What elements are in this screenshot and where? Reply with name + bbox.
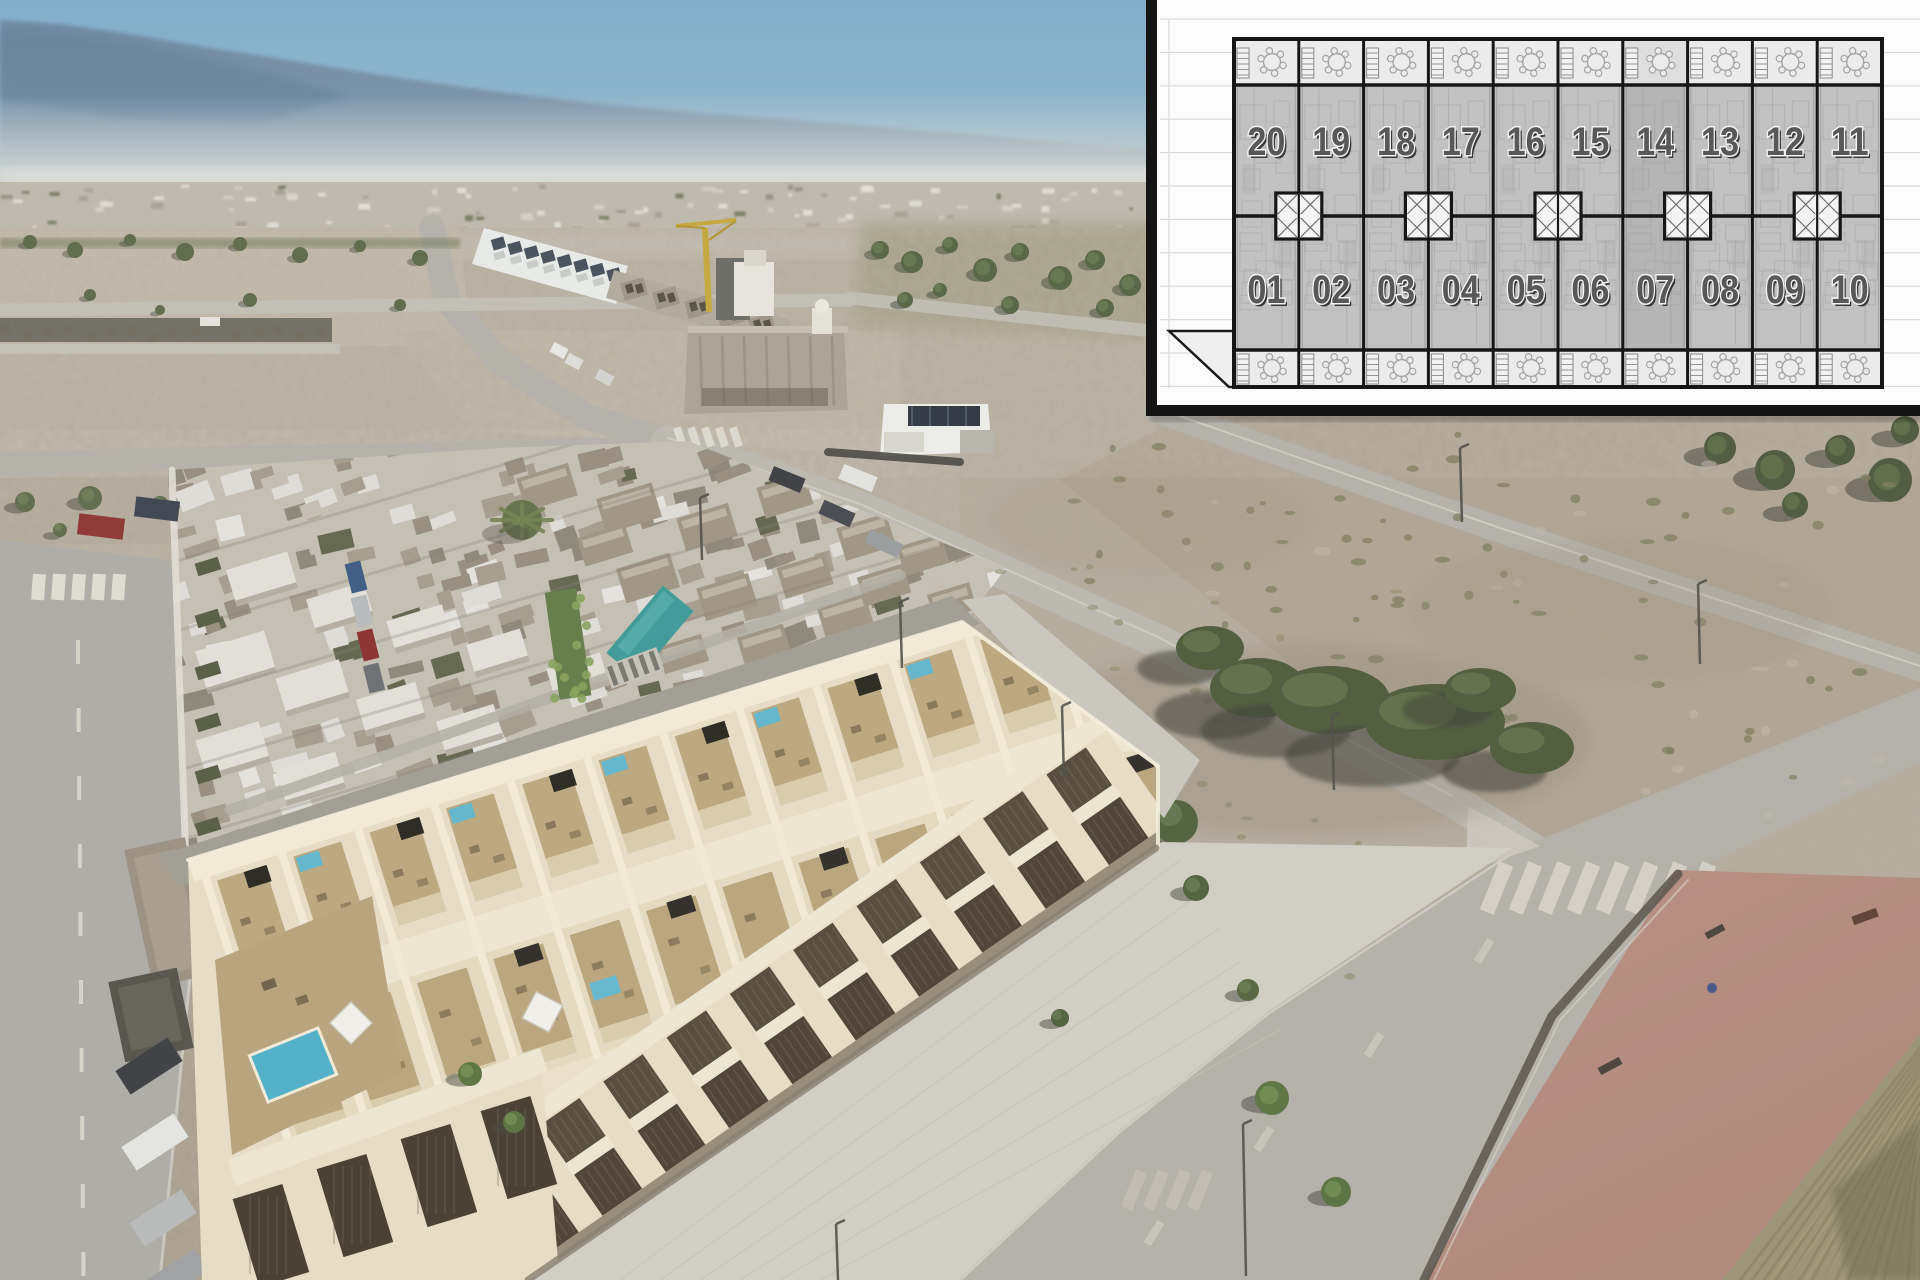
svg-text:11: 11 (1831, 120, 1869, 164)
svg-text:17: 17 (1442, 120, 1480, 164)
svg-text:01: 01 (1247, 268, 1285, 312)
svg-text:02: 02 (1312, 268, 1350, 312)
svg-text:06: 06 (1571, 268, 1609, 312)
svg-text:15: 15 (1571, 120, 1609, 164)
svg-text:12: 12 (1766, 120, 1804, 164)
svg-text:05: 05 (1507, 268, 1545, 312)
svg-text:04: 04 (1442, 268, 1481, 312)
svg-text:07: 07 (1636, 268, 1674, 312)
svg-text:14: 14 (1636, 120, 1675, 164)
svg-text:20: 20 (1247, 120, 1285, 164)
svg-text:19: 19 (1312, 120, 1350, 164)
svg-text:10: 10 (1831, 268, 1869, 312)
svg-text:16: 16 (1507, 120, 1545, 164)
svg-text:18: 18 (1377, 120, 1415, 164)
svg-text:03: 03 (1377, 268, 1415, 312)
svg-text:09: 09 (1766, 268, 1804, 312)
svg-text:08: 08 (1701, 268, 1739, 312)
svg-text:13: 13 (1701, 120, 1739, 164)
